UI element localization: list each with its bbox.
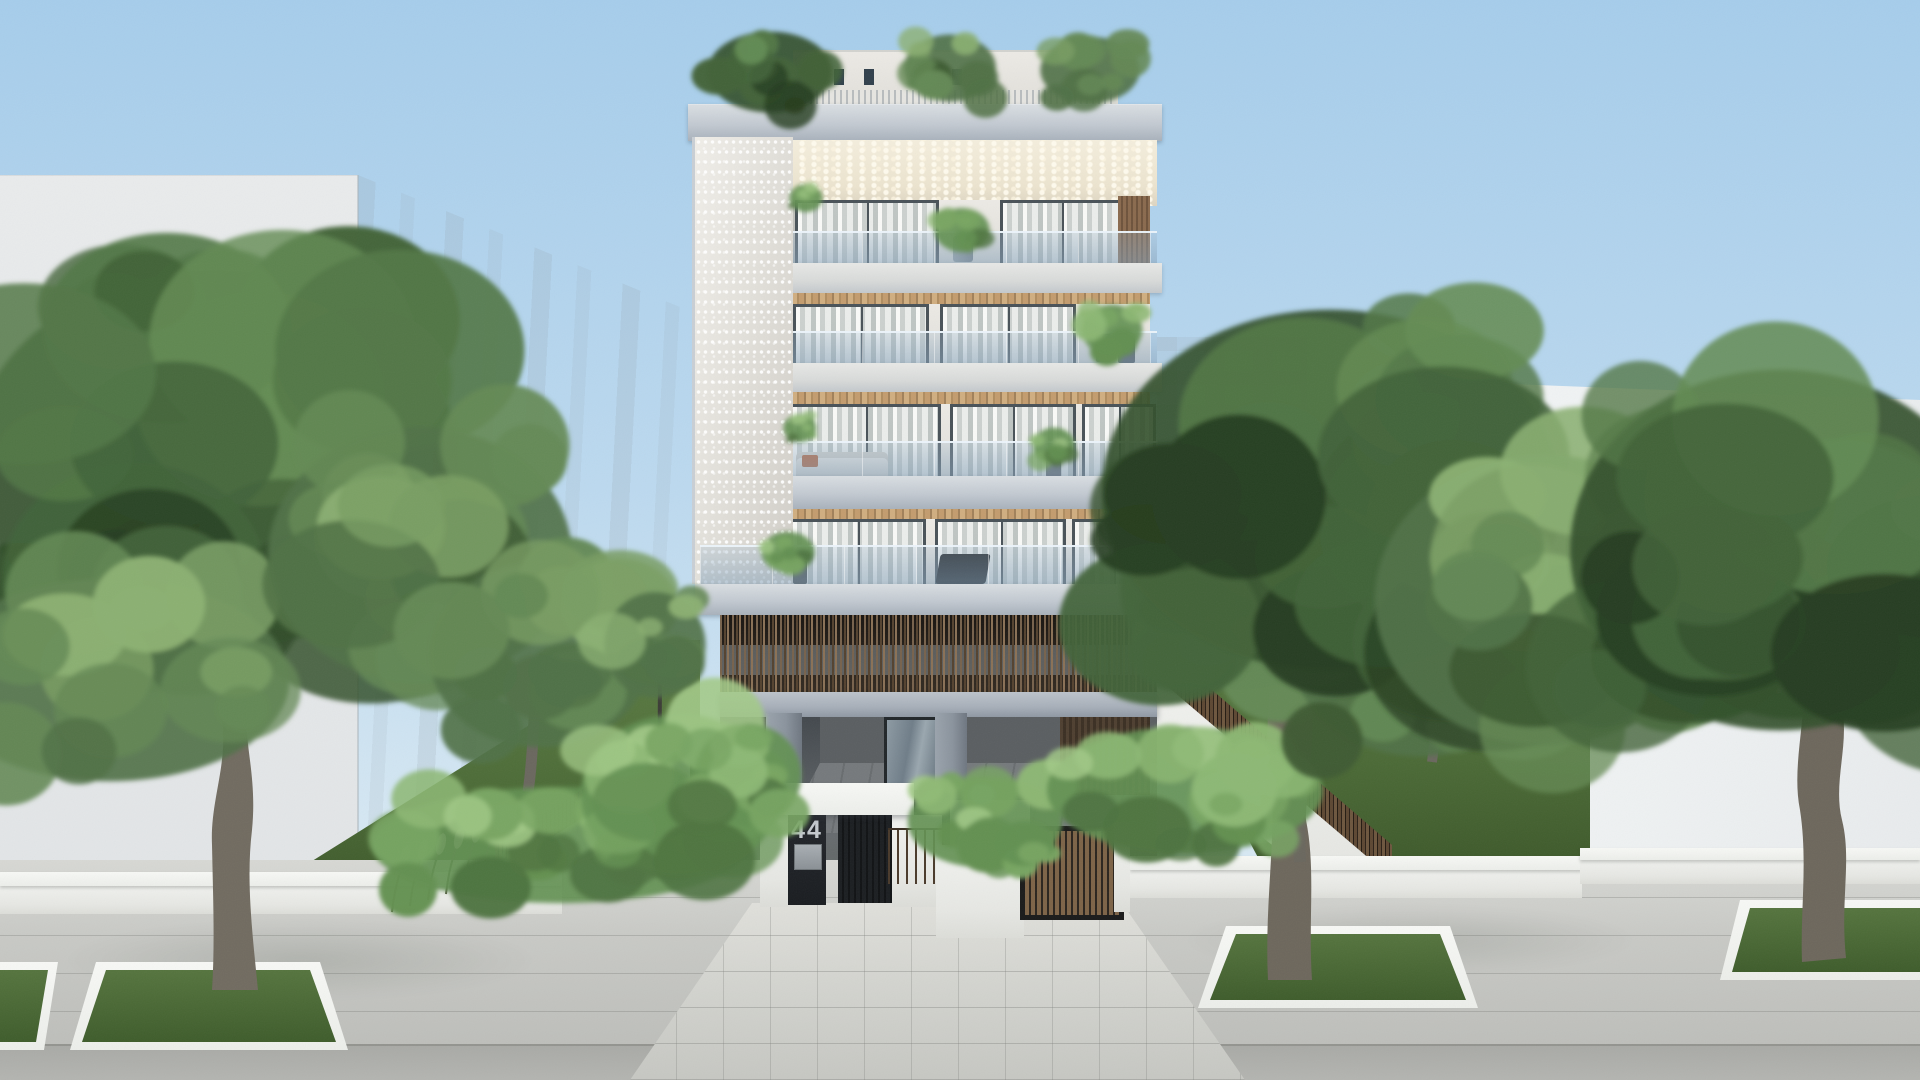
right-garden-shrubs [1045, 722, 1323, 867]
balcony3-plant [1027, 428, 1078, 471]
balcony4-plants [1072, 300, 1152, 366]
rooftop-plants-left [692, 30, 843, 129]
tree-canopies [0, 27, 1920, 919]
balcony5-left-plant [788, 182, 822, 212]
balcony5-fern [927, 207, 994, 252]
far-right-tree-canopy [1526, 321, 1920, 775]
entrance-planter-left-plants [668, 724, 810, 837]
trees-and-plants [0, 0, 1920, 1080]
left-street-tree-canopy-low [0, 531, 301, 806]
rooftop-plants-right [1037, 29, 1151, 111]
balcony3-left-plants [783, 410, 817, 442]
rooftop-plants-mid [897, 27, 1008, 118]
balcony2-plants [759, 532, 815, 575]
architectural-render: 44 [0, 0, 1920, 1080]
